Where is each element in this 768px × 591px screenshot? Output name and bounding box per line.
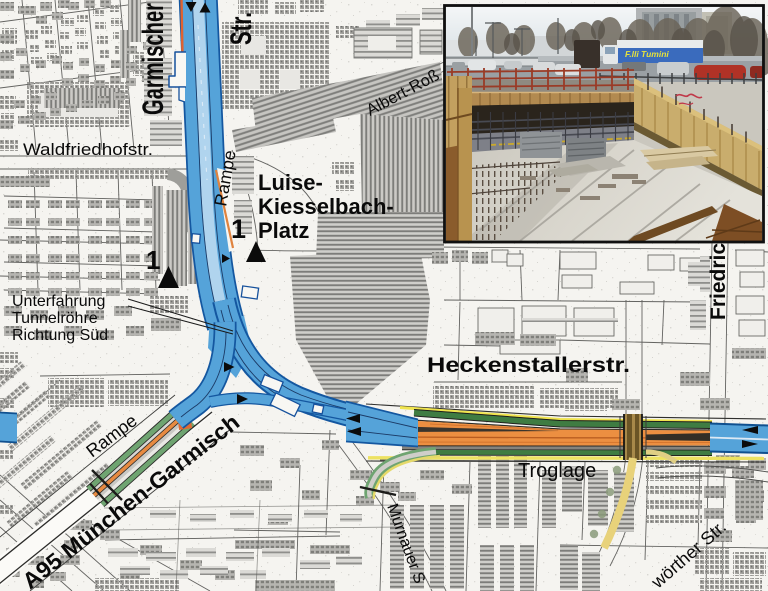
- svg-text:1: 1: [146, 245, 160, 275]
- svg-text:Richtung Süd: Richtung Süd: [12, 327, 108, 344]
- svg-text:Str.: Str.: [225, 12, 258, 45]
- svg-text:Heckenstallerstr.: Heckenstallerstr.: [427, 354, 630, 377]
- svg-text:Platz: Platz: [258, 218, 309, 243]
- svg-text:Luise-: Luise-: [258, 170, 323, 195]
- svg-text:Tunnelröhre: Tunnelröhre: [12, 310, 98, 327]
- svg-text:Troglage: Troglage: [518, 460, 596, 482]
- svg-text:Waldfriedhofstr.: Waldfriedhofstr.: [23, 140, 153, 159]
- svg-text:Unterfahrung: Unterfahrung: [12, 293, 105, 310]
- svg-text:Friedrich: Friedrich: [707, 230, 730, 320]
- svg-text:1: 1: [231, 214, 246, 244]
- svg-text:F.lli Tumini: F.lli Tumini: [625, 49, 669, 59]
- svg-text:Garmischer: Garmischer: [137, 3, 170, 115]
- svg-text:Kiesselbach-: Kiesselbach-: [258, 194, 394, 219]
